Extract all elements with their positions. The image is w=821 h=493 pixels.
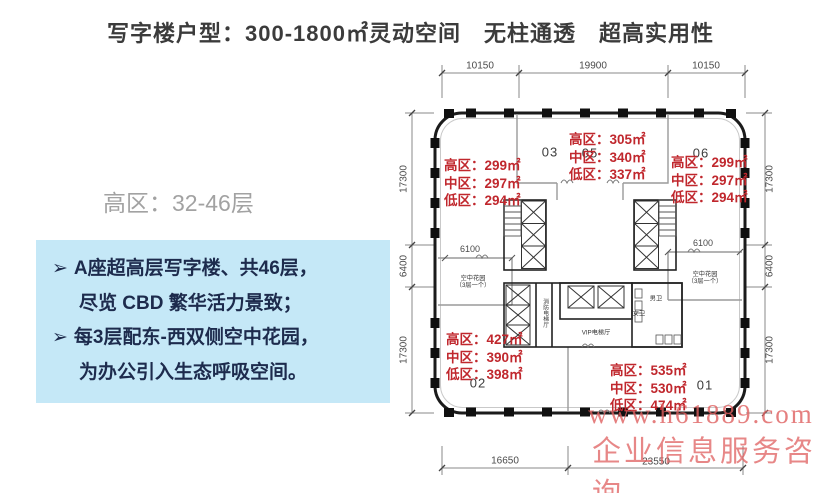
area-row: 中区：297㎡: [671, 172, 748, 190]
arrow-bullet-icon: ➢: [52, 327, 68, 348]
area-row: 低区：294㎡: [444, 192, 521, 210]
highlight-item-2: ➢每3层配东-西双侧空中花园，: [52, 321, 390, 356]
slide-canvas: 写字楼户型：300-1800㎡灵动空间 无柱通透 超高实用性 高区：32-46层…: [0, 0, 821, 493]
restroom-f-label: 女卫: [633, 311, 645, 318]
unit-areas-02: 高区：427㎡ 中区：390㎡ 低区：398㎡: [446, 331, 523, 384]
arrow-bullet-icon: ➢: [52, 258, 68, 279]
area-row: 高区：427㎡: [446, 331, 523, 349]
page-title: 写字楼户型：300-1800㎡灵动空间 无柱通透 超高实用性: [0, 16, 821, 48]
sky-garden-subtext: （3层一个）: [456, 282, 490, 289]
watermark-url: www.h61889.com: [588, 399, 814, 430]
highlight-1-line-2: 尽览 CBD 繁华活力景致；: [52, 287, 390, 322]
sky-garden-label-right: 空中花园 （3层一个）: [688, 271, 722, 285]
dim-right-1: 17300: [765, 165, 776, 193]
dim-garden-right: 6100: [693, 238, 713, 248]
dim-right-3: 17300: [765, 336, 776, 364]
area-row: 低区：398㎡: [446, 366, 523, 384]
dim-bottom-1: 16650: [491, 456, 519, 467]
unit-areas-06: 高区：299㎡ 中区：297㎡ 低区：294㎡: [671, 154, 748, 207]
area-row: 低区：294㎡: [671, 189, 748, 207]
dim-top-2: 19900: [579, 61, 607, 72]
dim-top-3: 10150: [692, 61, 720, 72]
highlight-2-line-1: 每3层配东-西双侧空中花园，: [74, 327, 319, 348]
unit-number-01: 01: [697, 378, 713, 393]
highlights-panel: ➢A座超高层写字楼、共46层， 尽览 CBD 繁华活力景致； ➢每3层配东-西双…: [36, 240, 390, 403]
zone-high: 高区：32-46层: [103, 190, 254, 217]
dim-garden-left: 6100: [460, 244, 480, 254]
sky-garden-text: 空中花园: [688, 271, 722, 278]
sky-garden-label-left: 空中花园 （3层一个）: [456, 275, 490, 289]
dim-left-1: 17300: [399, 165, 410, 193]
unit-areas-03: 高区：299㎡ 中区：297㎡ 低区：294㎡: [444, 157, 521, 210]
vip-lobby-label: VIP电梯厅: [582, 330, 611, 337]
area-row: 高区：535㎡: [610, 362, 687, 380]
restroom-m-label: 男卫: [650, 296, 662, 303]
area-row: 高区：299㎡: [671, 154, 748, 172]
area-row: 中区：340㎡: [569, 149, 646, 167]
dim-left-2: 6400: [399, 255, 410, 277]
dim-right-2: 6400: [765, 255, 776, 277]
highlight-item-1: ➢A座超高层写字楼、共46层，: [52, 252, 390, 287]
sky-garden-text: 空中花园: [456, 275, 490, 282]
unit-number-03: 03: [542, 145, 558, 160]
area-row: 中区：390㎡: [446, 349, 523, 367]
area-row: 中区：297㎡: [444, 175, 521, 193]
area-row: 高区：305㎡: [569, 131, 646, 149]
area-row: 高区：299㎡: [444, 157, 521, 175]
area-row: 中区：530㎡: [610, 380, 687, 398]
watermark-caption: 企业信息服务咨询: [592, 428, 821, 493]
highlight-1-line-1: A座超高层写字楼、共46层，: [74, 258, 318, 279]
highlight-2-line-2: 为办公引入生态呼吸空间。: [52, 356, 390, 391]
area-row: 低区：337㎡: [569, 166, 646, 184]
unit-areas-05: 高区：305㎡ 中区：340㎡ 低区：337㎡: [569, 131, 646, 184]
dim-left-3: 17300: [399, 336, 410, 364]
dim-top-1: 10150: [466, 61, 494, 72]
fire-lobby-label: 消防电梯厅: [542, 299, 548, 328]
sky-garden-subtext: （3层一个）: [688, 278, 722, 285]
